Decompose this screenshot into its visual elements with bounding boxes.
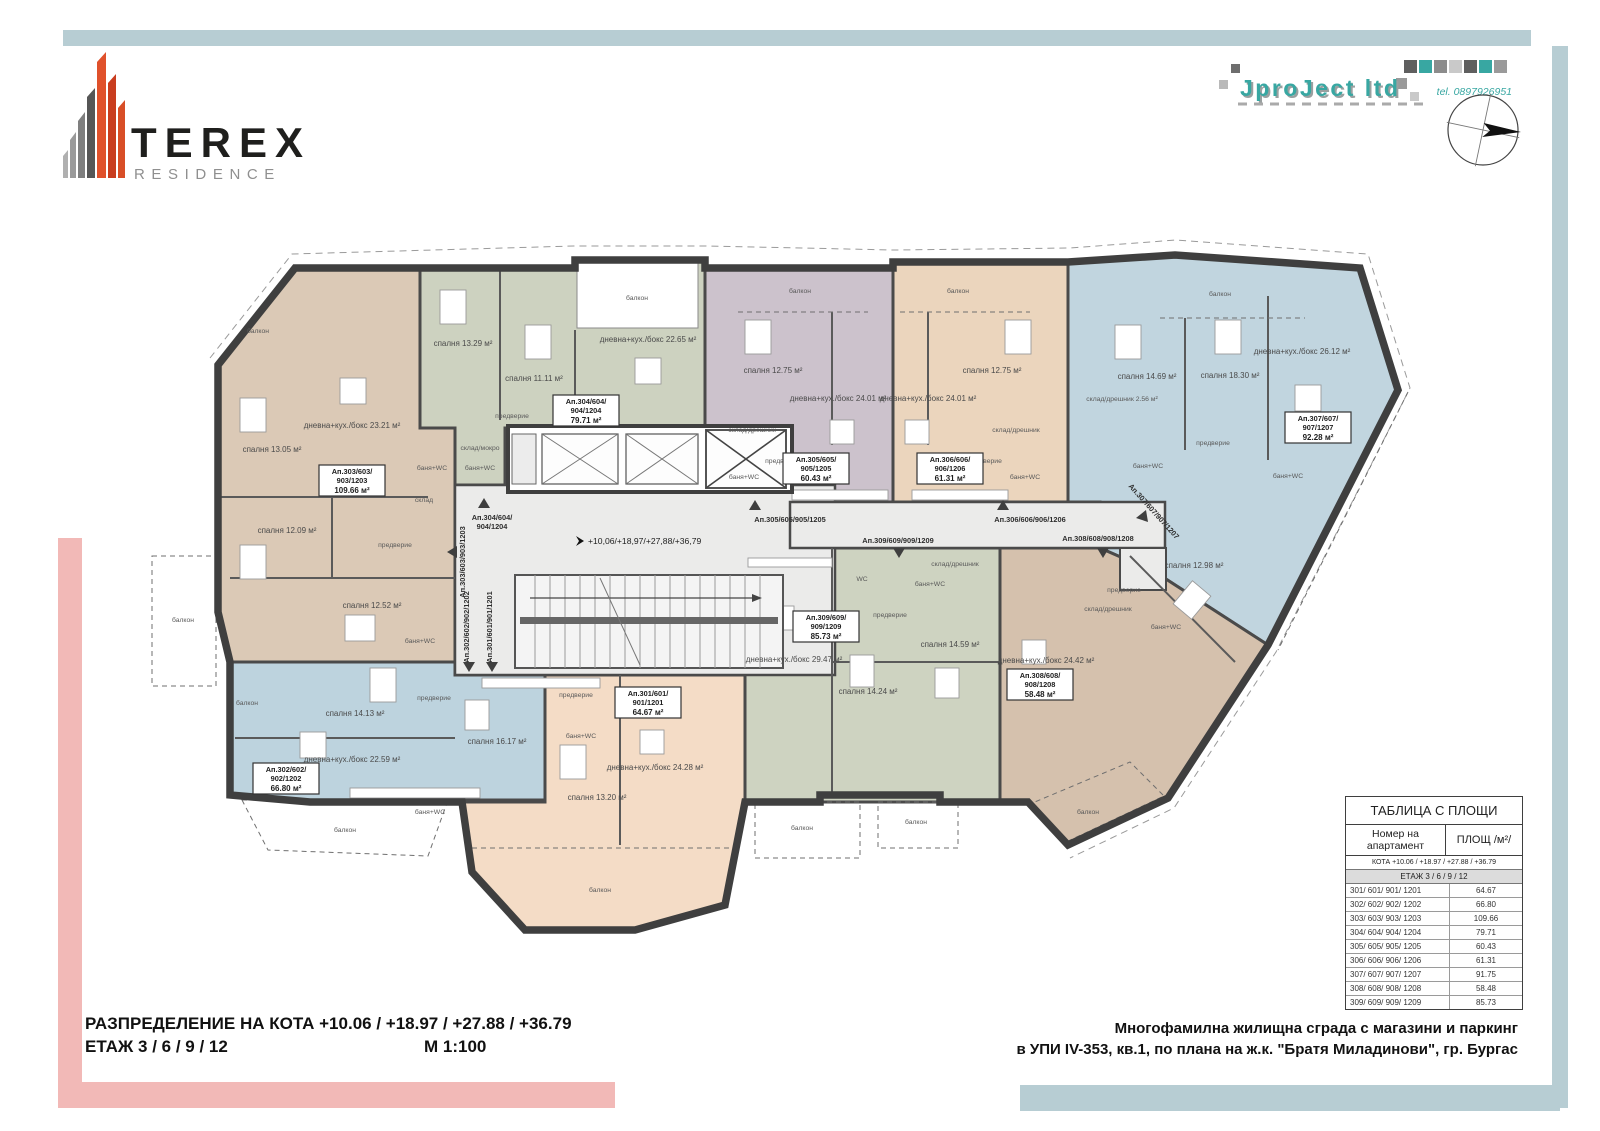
firm-name: JproJect ltd	[1240, 75, 1400, 101]
terex-logo: TEREX RESIDENCE	[63, 52, 311, 183]
logo-bar	[87, 88, 95, 178]
cell-apartment: 302/ 602/ 902/ 1202	[1346, 898, 1450, 911]
cell-apartment: 301/ 601/ 901/ 1201	[1346, 884, 1450, 897]
room-label: склад/дрешник	[992, 427, 1040, 434]
room-label: склад/дрешник	[931, 561, 979, 568]
room-label: спалня 12.98 м²	[1165, 561, 1224, 570]
apt-tag-305: Ап.305/605/ 905/1205 60.43 м²	[783, 453, 849, 484]
level-note-text: +10,06/+18,97/+27,88/+36,79	[588, 536, 701, 546]
logo-square	[1434, 60, 1447, 73]
right-accent-bar	[1552, 46, 1568, 1108]
room-label: дневна+кух./бокс 23.21 м²	[304, 421, 401, 430]
cell-area: 109.66	[1450, 912, 1522, 925]
room-label: спалня 12.75 м²	[744, 366, 803, 375]
room-label: спалня 13.20 м²	[568, 793, 627, 802]
room-label: балкон	[791, 824, 813, 832]
room-label: склад/мокро	[460, 445, 499, 452]
apt-tag-304: Ап.304/604/ 904/1204 79.71 м²	[553, 395, 619, 426]
room-label: балкон	[236, 699, 258, 707]
table-row: 306/ 606/ 906/ 120661.31	[1346, 954, 1522, 968]
apt-tag-area: 92.28 м²	[1303, 433, 1334, 442]
room-label: спалня 13.29 м²	[434, 339, 493, 348]
apt-tag-307: Ап.307/607/ 907/1207 92.28 м²	[1285, 412, 1351, 443]
entry-label: Ап.303/603/903/1203	[458, 526, 467, 597]
north-arrow-icon	[1439, 86, 1527, 174]
apt-tag-306: Ап.306/606/ 906/1206 61.31 м²	[917, 453, 983, 484]
floor-plan: +10,06/+18,97/+27,88/+36,79 дневна+кух./…	[152, 240, 1410, 930]
room-label: спалня 14.13 м²	[326, 709, 385, 718]
apt-tag-line: 909/1209	[811, 622, 842, 631]
table-row: 305/ 605/ 905/ 120560.43	[1346, 940, 1522, 954]
apt-tag-area: 109.66 м²	[334, 486, 370, 495]
project-line1: Многофамилна жилищна сграда с магазини и…	[1016, 1018, 1518, 1039]
titleblock-scale: М 1:100	[424, 1037, 486, 1057]
logo-square	[1404, 60, 1417, 73]
staircase	[515, 575, 783, 668]
apt-tag-line: Ап.309/609/	[806, 613, 847, 622]
apt-tag-line: Ап.305/605/	[796, 455, 837, 464]
cell-apartment: 307/ 607/ 907/ 1207	[1346, 968, 1450, 981]
room-label: предверие	[1196, 440, 1230, 447]
table-etaj-row: ЕТАЖ 3 / 6 / 9 / 12	[1346, 870, 1522, 884]
room-label: баня+WC	[465, 464, 495, 472]
apt-tag-301: Ап.301/601/ 901/1201 64.67 м²	[615, 687, 681, 718]
room-label: WC	[856, 576, 867, 583]
room-label: спалня 11.11 м²	[505, 374, 563, 383]
cell-area: 60.43	[1450, 940, 1522, 953]
bottom-left-accent-bar	[58, 1082, 615, 1108]
apt-tag-line: 908/1208	[1025, 680, 1056, 689]
cell-apartment: 309/ 609/ 909/ 1209	[1346, 996, 1450, 1009]
entry-label: Ап.308/608/908/1208	[1062, 534, 1133, 543]
brand-subtitle: RESIDENCE	[134, 166, 281, 183]
areas-table: ТАБЛИЦА С ПЛОЩИ Номер на апартамент ПЛОЩ…	[1345, 796, 1523, 1010]
room-label: баня+WC	[1133, 462, 1163, 470]
room-label: предверие	[559, 692, 593, 699]
left-accent-bar	[58, 538, 82, 1104]
room-label: балкон	[1077, 808, 1099, 816]
logo-square	[1464, 60, 1477, 73]
apt-tag-area: 64.67 м²	[633, 708, 664, 717]
room-label: балкон	[172, 616, 194, 624]
room-label: дневна+кух./бокс 24.01 м²	[880, 394, 977, 403]
room-label: спалня 12.52 м²	[343, 601, 402, 610]
room-label: баня+WC	[1010, 473, 1040, 481]
titleblock-floor-line: ЕТАЖ 3 / 6 / 9 / 12	[85, 1037, 228, 1057]
room-label: спалня 16.17 м²	[468, 737, 527, 746]
apt-tag-line: Ап.303/603/	[332, 467, 373, 476]
room-label: склад/дрешник	[728, 427, 776, 434]
apt-tag-area: 66.80 м²	[271, 784, 302, 793]
cell-apartment: 308/ 608/ 908/ 1208	[1346, 982, 1450, 995]
table-row: 309/ 609/ 909/ 120985.73	[1346, 996, 1522, 1009]
room-label: склад/дрешник	[1084, 606, 1132, 613]
apt-tag-area: 58.48 м²	[1025, 690, 1056, 699]
apt-tag-line: 906/1206	[935, 464, 966, 473]
top-accent-bar	[63, 30, 1531, 46]
room-label: предверие	[417, 695, 451, 702]
room-label: предверие	[378, 542, 412, 549]
entry-label: Ап.306/606/906/1206	[994, 515, 1065, 524]
room-label: баня+WC	[417, 464, 447, 472]
logo-bar	[78, 112, 85, 178]
room-label: балкон	[905, 818, 927, 826]
table-kota-row: КОТА +10.06 / +18.97 / +27.88 / +36.79	[1346, 856, 1522, 870]
room-label: предверие	[1107, 587, 1141, 594]
logo-square	[1410, 92, 1419, 101]
cell-apartment: 306/ 606/ 906/ 1206	[1346, 954, 1450, 967]
room-label: балкон	[789, 287, 811, 295]
room-label: дневна+кух./бокс 24.01 м²	[790, 394, 887, 403]
apt-tag-line: Ап.301/601/	[628, 689, 669, 698]
room-label: спалня 14.24 м²	[839, 687, 898, 696]
table-row: 303/ 603/ 903/ 1203109.66	[1346, 912, 1522, 926]
entry-label: Ап.309/609/909/1209	[862, 536, 933, 545]
table-row: 301/ 601/ 901/ 120164.67	[1346, 884, 1522, 898]
room-label: спалня 18.30 м²	[1201, 371, 1260, 380]
cell-area: 61.31	[1450, 954, 1522, 967]
room-label: баня+WC	[915, 580, 945, 588]
apt-tag-line: 903/1203	[337, 476, 368, 485]
cell-apartment: 303/ 603/ 903/ 1203	[1346, 912, 1450, 925]
room-label: дневна+кух./бокс 24.28 м²	[607, 763, 704, 772]
elevator-core	[508, 426, 792, 492]
apt-tag-308: Ап.308/608/ 908/1208 58.48 м²	[1007, 669, 1073, 700]
logo-square	[1419, 60, 1432, 73]
room-label: балкон	[947, 287, 969, 295]
table-row: 307/ 607/ 907/ 120791.75	[1346, 968, 1522, 982]
logo-bar	[118, 100, 125, 178]
room-label: балкон	[334, 826, 356, 834]
room-label: балкон	[626, 294, 648, 302]
apt-tag-area: 60.43 м²	[801, 474, 832, 483]
cell-area: 91.75	[1450, 968, 1522, 981]
apt-tag-309: Ап.309/609/ 909/1209 85.73 м²	[793, 611, 859, 642]
brand-title: TEREX	[131, 119, 311, 166]
room-label: дневна+кух./бокс 29.47 м²	[746, 655, 843, 664]
bottom-right-accent-bar	[1020, 1085, 1560, 1111]
entry-label: Ап.304/604/	[472, 513, 513, 522]
apt-tag-line: 907/1207	[1303, 423, 1334, 432]
cell-area: 58.48	[1450, 982, 1522, 995]
titleblock-kota-line: РАЗПРЕДЕЛЕНИЕ НА КОТА +10.06 / +18.97 / …	[85, 1014, 572, 1034]
apt-tag-line: Ап.308/608/	[1020, 671, 1061, 680]
apt-tag-area: 85.73 м²	[811, 632, 842, 641]
room-label: спалня 13.05 м²	[243, 445, 302, 454]
room-label: баня+WC	[566, 732, 596, 740]
project-line2: в УПИ IV-353, кв.1, по плана на ж.к. "Бр…	[1016, 1039, 1518, 1060]
jproject-logo: JproJect ltd JproJect ltd tel. 089792695…	[1219, 60, 1512, 104]
room-label: дневна+кух./бокс 22.65 м²	[600, 335, 697, 344]
room-label: предверие	[495, 413, 529, 420]
logo-square	[1449, 60, 1462, 73]
room-label: баня+WC	[1151, 623, 1181, 631]
level-note: +10,06/+18,97/+27,88/+36,79	[576, 536, 701, 546]
apt-tag-line: Ап.302/602/	[266, 765, 307, 774]
apt-tag-line: 901/1201	[633, 698, 664, 707]
drawing-sheet: TEREX RESIDENCE JproJect ltd JproJect lt…	[0, 0, 1600, 1131]
apt-tag-302: Ап.302/602/ 902/1202 66.80 м²	[253, 763, 319, 794]
room-label: предверие	[873, 612, 907, 619]
apt-tag-line: Ап.307/607/	[1298, 414, 1339, 423]
apt-tag-line: Ап.306/606/	[930, 455, 971, 464]
entry-label: Ап.305/605/905/1205	[754, 515, 825, 524]
entry-label: Ап.302/602/902/1202	[462, 591, 471, 662]
room-label: склад/дрешник 2.56 м²	[1086, 396, 1158, 403]
room-label: склад	[415, 497, 433, 504]
cell-apartment: 305/ 605/ 905/ 1205	[1346, 940, 1450, 953]
room-label: дневна+кух./бокс 26.12 м²	[1254, 347, 1351, 356]
table-row: 308/ 608/ 908/ 120858.48	[1346, 982, 1522, 996]
entry-label: Ап.301/601/901/1201	[485, 591, 494, 662]
titleblock-project-description: Многофамилна жилищна сграда с магазини и…	[1016, 1018, 1518, 1060]
areas-table-header: Номер на апартамент ПЛОЩ /м²/	[1346, 825, 1522, 856]
areas-table-title: ТАБЛИЦА С ПЛОЩИ	[1346, 797, 1522, 825]
apt-tag-line: 902/1202	[271, 774, 302, 783]
room-label: балкон	[1209, 290, 1231, 298]
apt-tag-line: 905/1205	[801, 464, 832, 473]
apt-tag-line: 904/1204	[571, 406, 603, 415]
table-row: 302/ 602/ 902/ 120266.80	[1346, 898, 1522, 912]
logo-square	[1494, 60, 1507, 73]
cell-area: 85.73	[1450, 996, 1522, 1009]
apt-tag-line: Ап.304/604/	[566, 397, 607, 406]
room-label: дневна+кух./бокс 24.42 м²	[998, 656, 1095, 665]
entry-label: 904/1204	[477, 522, 509, 531]
room-label: спалня 14.59 м²	[921, 640, 980, 649]
cell-area: 66.80	[1450, 898, 1522, 911]
room-label: баня+WC	[1273, 472, 1303, 480]
apt-tag-area: 61.31 м²	[935, 474, 966, 483]
room-label: баня+WC	[729, 473, 759, 481]
room-label: спалня 12.09 м²	[258, 526, 317, 535]
logo-square	[1479, 60, 1492, 73]
logo-bar	[108, 74, 116, 178]
logo-square	[1219, 80, 1228, 89]
logo-square	[1231, 64, 1240, 73]
col-header-apartment: Номер на апартамент	[1346, 825, 1446, 855]
cell-area: 64.67	[1450, 884, 1522, 897]
apt-tag-303: Ап.303/603/ 903/1203 109.66 м²	[319, 465, 385, 496]
logo-bar	[97, 52, 106, 178]
room-label: баня+WC	[415, 808, 445, 816]
table-row: 304/ 604/ 904/ 120479.71	[1346, 926, 1522, 940]
room-label: баня+WC	[405, 637, 435, 645]
room-label: балкон	[589, 886, 611, 894]
logo-bar	[63, 150, 68, 178]
apt-tag-area: 79.71 м²	[571, 416, 602, 425]
cell-apartment: 304/ 604/ 904/ 1204	[1346, 926, 1450, 939]
logo-bar	[70, 132, 76, 178]
room-label: балкон	[247, 327, 269, 335]
col-header-area: ПЛОЩ /м²/	[1446, 825, 1522, 855]
cell-area: 79.71	[1450, 926, 1522, 939]
room-label: спалня 14.69 м²	[1118, 372, 1177, 381]
room-label: спалня 12.75 м²	[963, 366, 1022, 375]
